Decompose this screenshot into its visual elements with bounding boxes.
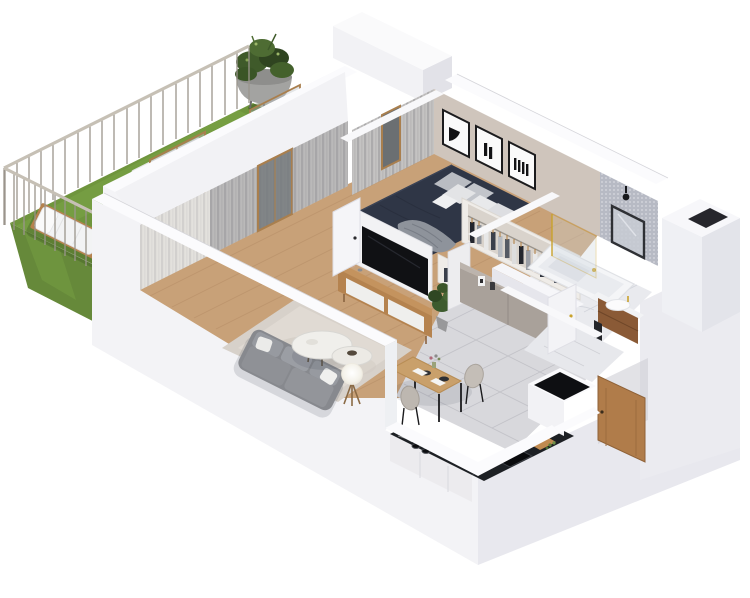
shaft-column (662, 199, 740, 332)
floorplan-screenshot (0, 0, 750, 598)
apartment-3d-floorplan (0, 0, 750, 598)
north-wall-block (333, 12, 452, 102)
open-white-door (333, 198, 360, 276)
